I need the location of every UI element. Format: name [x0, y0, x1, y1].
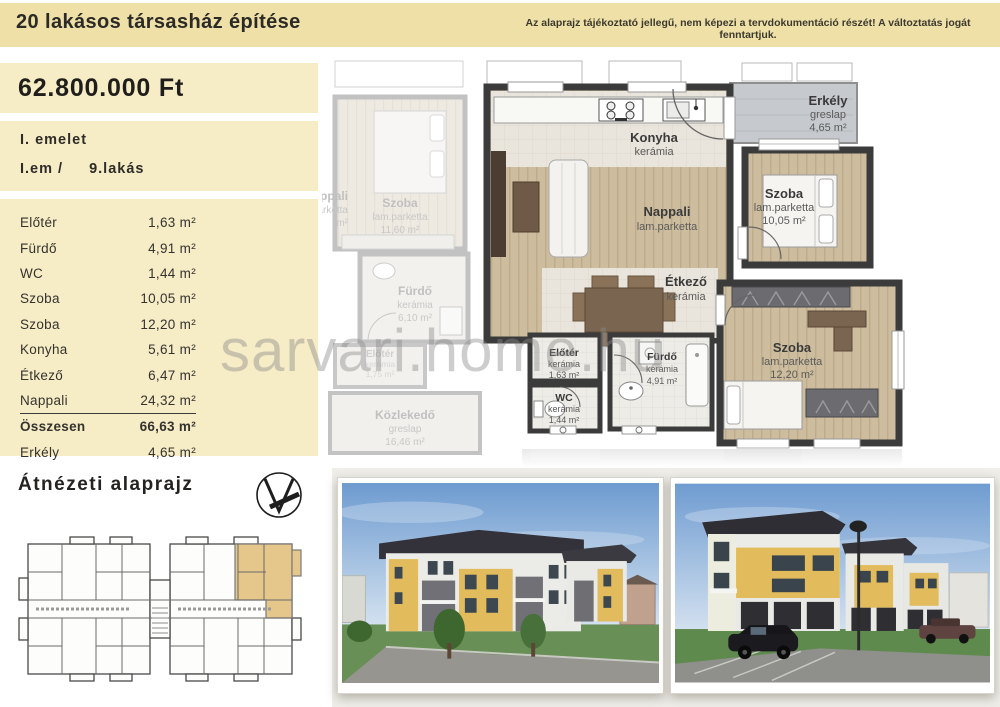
building-render-street — [675, 482, 990, 684]
rooms-bath-block: Előtér kerámia 1,63 m² Fürdő kerámia 4,9… — [530, 335, 712, 434]
svg-text:4,91 m²: 4,91 m² — [647, 376, 678, 386]
wardrobe — [732, 287, 850, 307]
room-label-erkely: Erkély greslap 4,65 m² — [808, 93, 848, 134]
desk — [808, 311, 866, 327]
washbasin — [619, 382, 643, 400]
svg-text:Előtér: Előtér — [549, 347, 579, 359]
table-row: Konyha5,61 m² — [20, 337, 196, 362]
room-szoba2: Szoba lam.parketta 12,20 m² — [716, 283, 904, 448]
tv-cabinet — [491, 151, 506, 257]
unit-label: I.em /9.lakás — [20, 161, 144, 177]
svg-text:Erkély: Erkély — [808, 93, 848, 108]
svg-text:kerámia: kerámia — [548, 359, 580, 369]
overview-floorplan — [10, 520, 310, 700]
price-value: 62.800.000 Ft — [18, 74, 184, 103]
table-row-nappali: Nappali24,32 m² — [20, 388, 196, 414]
svg-text:Fürdő: Fürdő — [647, 351, 677, 363]
unit-floor: I.em / — [20, 161, 63, 177]
room-label-konyha: Konyha kerámia — [630, 130, 678, 158]
svg-text:Közlekedő: Közlekedő — [375, 408, 435, 422]
entry-door — [724, 97, 735, 139]
table-row: WC1,44 m² — [20, 261, 196, 286]
exterior-render-1 — [337, 477, 664, 694]
adjacent-unit-faded: Nappali lam.parketta m² Szoba lam.parket… — [322, 61, 480, 453]
svg-text:lam.parketta: lam.parketta — [372, 212, 427, 223]
svg-text:1,75 m²: 1,75 m² — [366, 369, 395, 379]
page-title: 20 lakásos társasház építése — [16, 11, 301, 34]
room-label-eloter: Előtér kerámia 1,63 m² — [548, 347, 580, 380]
table-row: Szoba10,05 m² — [20, 286, 196, 311]
svg-text:Szoba: Szoba — [382, 196, 418, 210]
svg-text:kerámia: kerámia — [397, 300, 433, 311]
svg-text:m²: m² — [336, 218, 348, 229]
north-arrow-icon — [250, 466, 308, 524]
svg-text:10,05 m²: 10,05 m² — [762, 215, 806, 227]
exterior-render-2 — [670, 477, 995, 694]
table-row: Fürdő4,91 m² — [20, 235, 196, 260]
room-label-adjacent-eloter: Előtér kerámia 1,75 m² — [365, 349, 396, 379]
svg-text:kerámia: kerámia — [646, 364, 678, 374]
unit-floorplan: Nappali lam.parketta m² Szoba lam.parket… — [322, 55, 1000, 467]
svg-text:lam.parketta: lam.parketta — [322, 205, 348, 216]
svg-text:Nappali: Nappali — [644, 204, 691, 219]
svg-text:1,44 m²: 1,44 m² — [549, 415, 580, 425]
floor-label: I. emelet — [20, 132, 87, 148]
svg-text:kerámia: kerámia — [634, 146, 674, 158]
room-label-nappali: Nappali lam.parketta — [637, 204, 698, 233]
disclaimer-text: Az alaprajz tájékoztató jellegű, nem kép… — [503, 17, 993, 41]
table-row: Erkély4,65 m² — [20, 440, 196, 465]
svg-text:kerámia: kerámia — [666, 291, 706, 303]
svg-text:kerámia: kerámia — [548, 404, 580, 414]
lamp-post — [857, 528, 860, 650]
overview-title: Átnézeti alaprajz — [18, 474, 193, 496]
svg-text:6,10 m²: 6,10 m² — [398, 313, 433, 324]
room-erkely: Erkély greslap 4,65 m² — [730, 63, 857, 143]
sofa — [549, 160, 588, 257]
svg-text:lam.parketta: lam.parketta — [754, 202, 815, 214]
room-label-adjacent-furdo: Fürdő kerámia 6,10 m² — [397, 284, 433, 324]
svg-text:Szoba: Szoba — [773, 340, 812, 355]
svg-text:1,63 m²: 1,63 m² — [549, 370, 580, 380]
room-area-table: Előtér1,63 m² Fürdő4,91 m² WC1,44 m² Szo… — [20, 210, 196, 465]
coffee-table — [513, 182, 539, 232]
table-row: Előtér1,63 m² — [20, 210, 196, 235]
unit-number: 9.lakás — [89, 161, 144, 177]
svg-text:Étkező: Étkező — [665, 274, 707, 289]
svg-text:lam.parketta: lam.parketta — [762, 356, 823, 368]
svg-text:Szoba: Szoba — [765, 186, 804, 201]
svg-text:kerámia: kerámia — [365, 359, 396, 369]
svg-text:12,20 m²: 12,20 m² — [770, 369, 814, 381]
svg-text:Fürdő: Fürdő — [398, 284, 432, 298]
table-row-total: Összesen66,63 m² — [20, 414, 196, 439]
toilet — [534, 401, 543, 417]
svg-text:Nappali: Nappali — [322, 189, 348, 203]
room-szoba1: Szoba lam.parketta 10,05 m² — [738, 139, 870, 265]
svg-text:4,65 m²: 4,65 m² — [809, 122, 847, 134]
svg-text:WC: WC — [555, 392, 573, 404]
building-render-front — [342, 482, 659, 684]
svg-text:greslap: greslap — [810, 109, 846, 121]
svg-text:Konyha: Konyha — [630, 130, 678, 145]
table-row: Szoba12,20 m² — [20, 312, 196, 337]
svg-text:lam.parketta: lam.parketta — [637, 221, 698, 233]
svg-text:greslap: greslap — [389, 424, 422, 435]
table-row: Étkező6,47 m² — [20, 362, 196, 387]
svg-text:11,60 m²: 11,60 m² — [381, 225, 420, 236]
svg-text:16,46 m²: 16,46 m² — [385, 437, 425, 448]
room-label-etkezo: Étkező kerámia — [665, 274, 707, 303]
dining-table — [585, 288, 663, 332]
room-label-furdo: Fürdő kerámia 4,91 m² — [646, 351, 678, 386]
